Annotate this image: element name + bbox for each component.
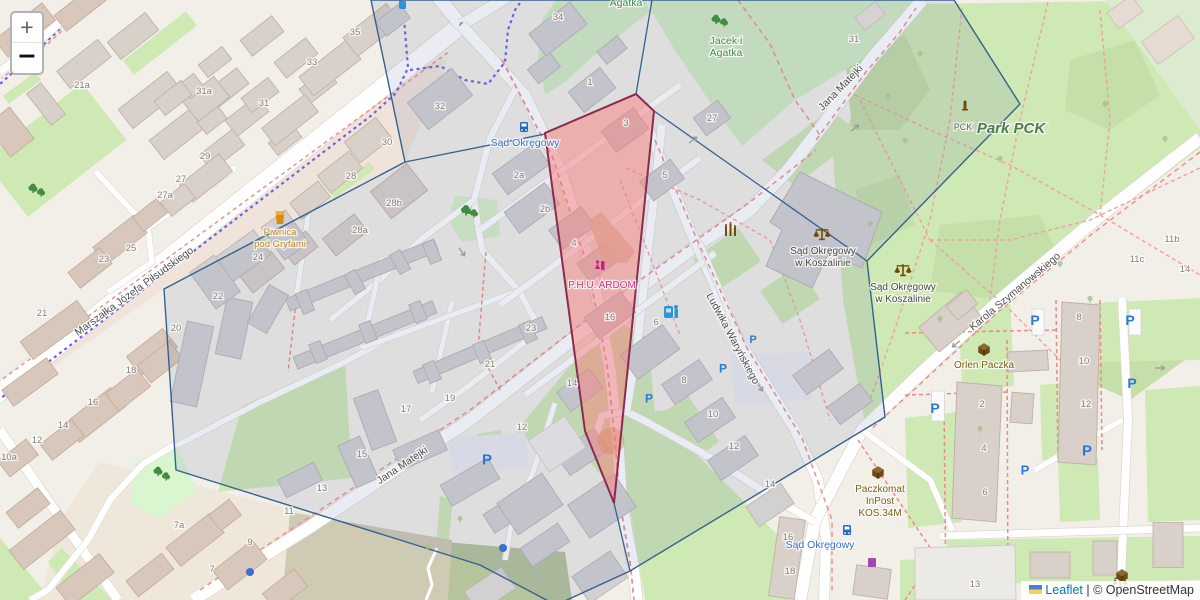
svg-text:13: 13 (970, 579, 981, 590)
svg-text:P: P (1125, 312, 1134, 328)
svg-text:16: 16 (783, 532, 794, 543)
svg-text:11c: 11c (1130, 254, 1145, 265)
svg-text:KOS.34M: KOS.34M (858, 508, 901, 519)
svg-text:PCK: PCK (954, 122, 973, 132)
svg-text:33: 33 (307, 57, 318, 68)
svg-text:12: 12 (32, 435, 43, 446)
svg-text:12: 12 (517, 422, 528, 433)
svg-text:P: P (719, 361, 727, 375)
svg-text:P: P (482, 451, 492, 468)
svg-text:14: 14 (765, 479, 776, 490)
svg-text:4: 4 (981, 443, 986, 454)
svg-text:28b: 28b (386, 198, 402, 209)
svg-text:27: 27 (707, 113, 718, 124)
svg-text:Jacek i: Jacek i (710, 35, 743, 47)
svg-text:11b: 11b (1164, 234, 1179, 245)
svg-text:10: 10 (708, 409, 719, 420)
svg-text:27: 27 (176, 174, 187, 185)
svg-text:10a: 10a (1, 452, 18, 463)
svg-text:18: 18 (785, 566, 796, 577)
svg-text:Sąd Okręgowy: Sąd Okręgowy (790, 246, 856, 257)
svg-text:pod Gryfami: pod Gryfami (254, 239, 306, 250)
svg-text:13: 13 (317, 483, 328, 494)
svg-text:Orlen Paczka: Orlen Paczka (954, 360, 1014, 371)
svg-text:8: 8 (1076, 312, 1081, 323)
svg-text:16: 16 (605, 312, 616, 323)
svg-text:5: 5 (662, 170, 667, 181)
svg-text:P: P (1127, 375, 1136, 391)
svg-text:Paczkomat: Paczkomat (855, 484, 905, 495)
svg-text:Sąd Okręgowy: Sąd Okręgowy (870, 282, 936, 293)
svg-text:14: 14 (1180, 264, 1191, 275)
svg-text:6: 6 (653, 317, 658, 328)
svg-text:9: 9 (247, 537, 252, 548)
svg-text:w Koszalinie: w Koszalinie (794, 258, 851, 269)
svg-text:15: 15 (357, 449, 368, 460)
svg-text:17: 17 (401, 404, 412, 415)
svg-text:3: 3 (623, 118, 628, 129)
svg-text:22: 22 (213, 291, 224, 302)
svg-text:P: P (930, 400, 939, 416)
svg-text:P: P (645, 391, 653, 405)
svg-text:14: 14 (58, 420, 69, 431)
svg-text:29: 29 (200, 151, 211, 162)
svg-text:25: 25 (126, 243, 137, 254)
svg-text:31: 31 (259, 98, 270, 109)
svg-text:7: 7 (209, 564, 214, 575)
svg-text:2a: 2a (514, 170, 525, 181)
svg-text:18: 18 (126, 365, 137, 376)
svg-text:14: 14 (567, 378, 578, 389)
svg-text:P.H.U. ARDOM: P.H.U. ARDOM (568, 280, 636, 291)
svg-text:27a: 27a (157, 190, 174, 201)
svg-text:Sąd Okręgowy: Sąd Okręgowy (786, 539, 856, 551)
svg-text:P: P (749, 334, 756, 346)
svg-text:21: 21 (37, 308, 48, 319)
svg-text:InPost: InPost (866, 496, 895, 507)
svg-text:28: 28 (346, 171, 357, 182)
svg-text:w Koszalinie: w Koszalinie (874, 294, 931, 305)
svg-text:Sąd Okręgowy: Sąd Okręgowy (491, 137, 561, 149)
svg-text:Piwnica: Piwnica (264, 227, 297, 238)
svg-text:2: 2 (979, 399, 984, 410)
svg-text:6: 6 (982, 487, 987, 498)
svg-text:P: P (1021, 463, 1030, 478)
svg-text:8: 8 (681, 375, 686, 386)
svg-text:1: 1 (587, 77, 592, 88)
svg-text:21a: 21a (74, 80, 91, 91)
svg-text:32: 32 (435, 101, 446, 112)
svg-text:21: 21 (485, 359, 496, 370)
svg-text:12: 12 (1081, 399, 1092, 410)
svg-text:Agatka: Agatka (610, 0, 643, 9)
svg-text:31: 31 (849, 34, 860, 45)
svg-text:24: 24 (253, 252, 264, 263)
svg-text:4: 4 (571, 238, 576, 249)
svg-text:23: 23 (99, 254, 110, 265)
svg-text:11: 11 (284, 506, 294, 517)
svg-text:P: P (1030, 312, 1039, 328)
svg-text:2b: 2b (540, 204, 551, 215)
svg-text:35: 35 (350, 27, 361, 38)
svg-text:7a: 7a (174, 520, 185, 531)
svg-text:34: 34 (553, 12, 564, 23)
svg-text:31a: 31a (196, 86, 213, 97)
svg-text:10: 10 (1079, 356, 1090, 367)
svg-text:Park PCK: Park PCK (977, 120, 1047, 137)
svg-text:16: 16 (88, 397, 99, 408)
svg-text:P: P (1082, 442, 1092, 459)
svg-text:30: 30 (382, 137, 393, 148)
svg-text:23: 23 (526, 323, 537, 334)
svg-text:12: 12 (729, 441, 740, 452)
svg-text:28a: 28a (352, 225, 369, 236)
svg-text:Agatka: Agatka (710, 47, 743, 59)
svg-text:20: 20 (171, 323, 182, 334)
svg-text:19: 19 (445, 393, 456, 404)
